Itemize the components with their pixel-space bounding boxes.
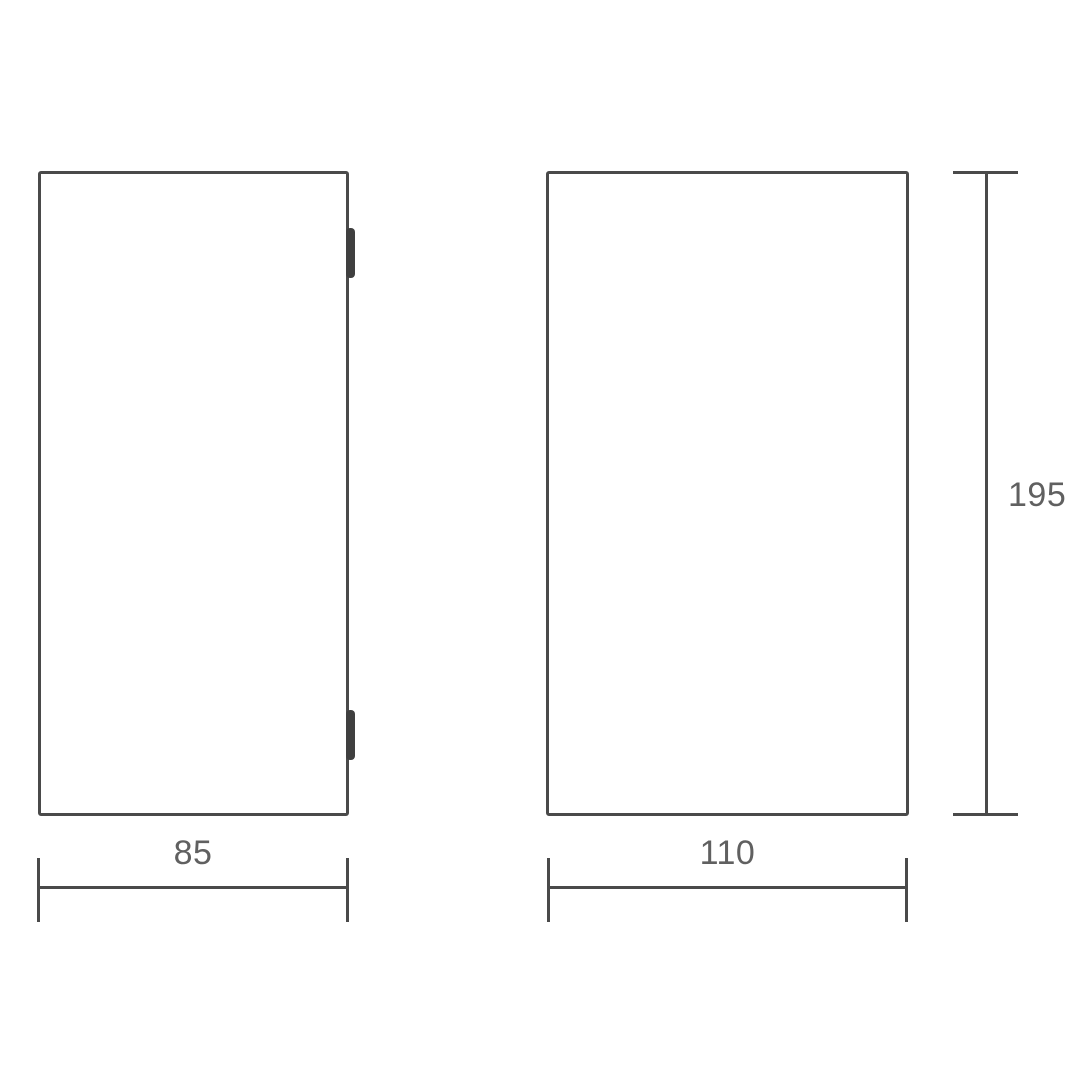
dimension-line [37, 886, 349, 889]
side-view-outline [38, 171, 349, 816]
drawing-canvas: 85 110 195 [0, 0, 1080, 1080]
dimension-label-side-width: 85 [37, 836, 349, 870]
front-view-outline [546, 171, 909, 816]
mounting-clip-top [346, 228, 355, 278]
dimension-line-vertical [985, 171, 988, 816]
dimension-label-front-width: 110 [547, 836, 908, 870]
dimension-tick-bottom [953, 813, 1018, 816]
mounting-clip-bottom [346, 710, 355, 760]
dimension-line [547, 886, 908, 889]
dimension-label-front-height: 195 [1008, 478, 1066, 512]
